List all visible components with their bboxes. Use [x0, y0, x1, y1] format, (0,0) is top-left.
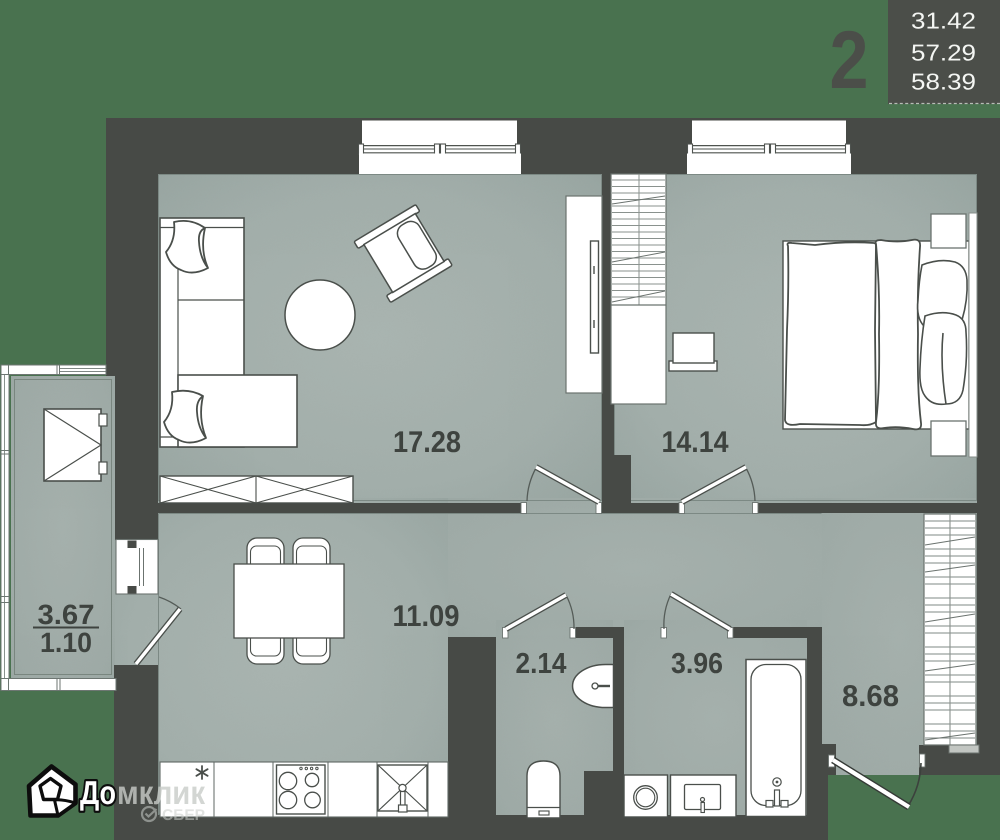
svg-text:1.10: 1.10	[40, 627, 92, 658]
svg-text:31.42: 31.42	[911, 8, 976, 34]
svg-text:8.68: 8.68	[842, 680, 899, 713]
svg-text:11.09: 11.09	[393, 600, 460, 633]
svg-text:58.39: 58.39	[911, 69, 976, 95]
svg-text:СБЕР: СБЕР	[162, 807, 205, 824]
svg-text:3.96: 3.96	[671, 648, 723, 680]
svg-text:2.14: 2.14	[516, 648, 567, 680]
svg-text:2: 2	[830, 15, 869, 106]
svg-text:мклик: мклик	[117, 774, 205, 811]
svg-text:57.29: 57.29	[911, 40, 976, 66]
svg-text:До: До	[80, 774, 116, 811]
svg-text:3.67: 3.67	[38, 599, 95, 630]
svg-text:17.28: 17.28	[393, 426, 461, 459]
svg-text:14.14: 14.14	[662, 426, 729, 459]
